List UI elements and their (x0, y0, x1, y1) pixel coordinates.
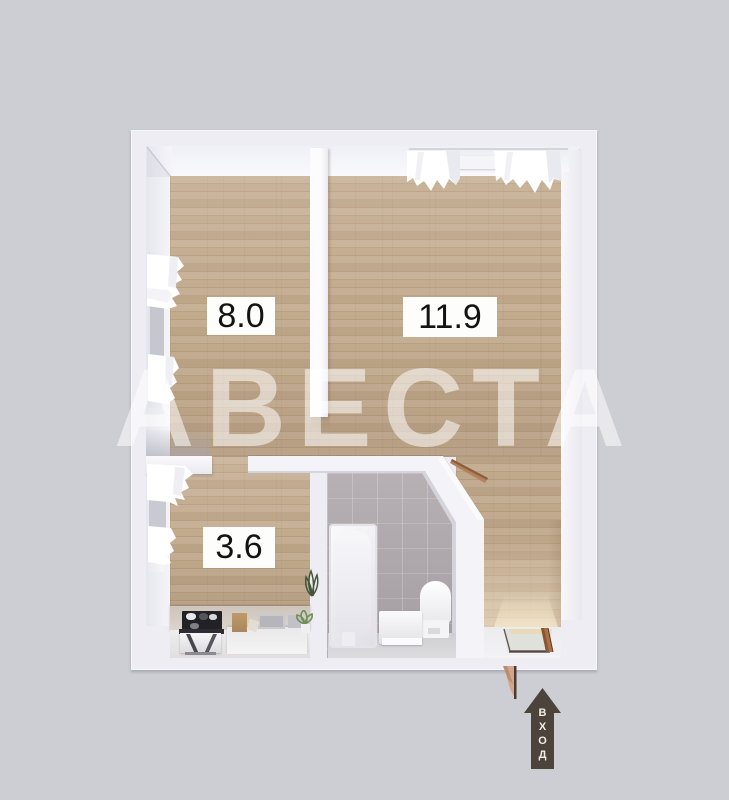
svg-text:О: О (538, 735, 547, 747)
svg-text:Х: Х (539, 721, 547, 733)
svg-text:В: В (539, 707, 547, 719)
svg-text:Д: Д (539, 749, 547, 761)
